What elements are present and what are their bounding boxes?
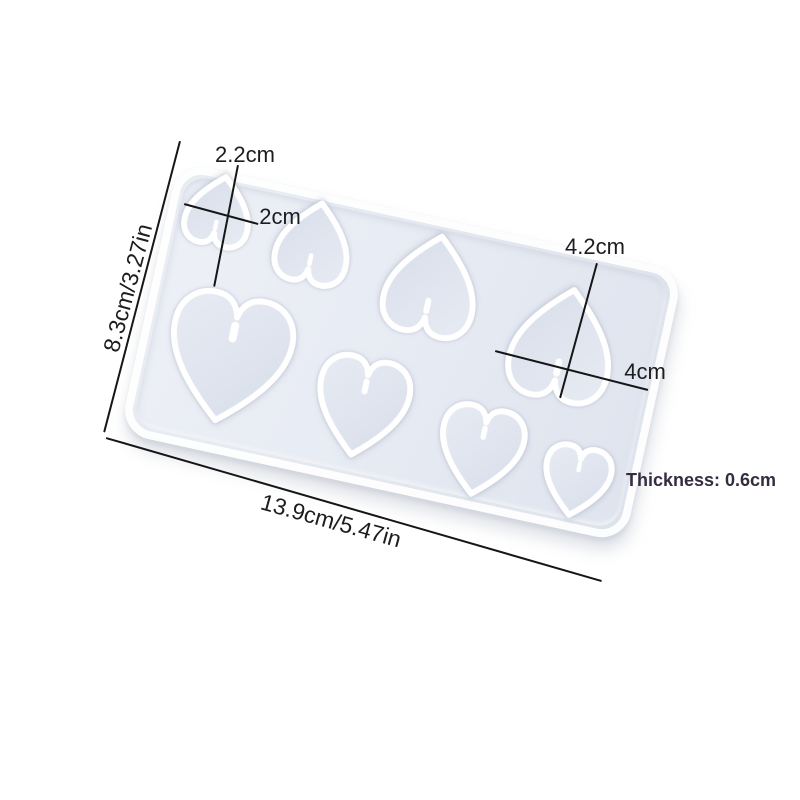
heart-cavity-1 bbox=[172, 162, 265, 258]
large-heart-width-label: 4cm bbox=[624, 361, 666, 383]
product-dimension-image: 8.3cm/3.27in 13.9cm/5.47in 2.2cm 2cm 4.2… bbox=[0, 0, 800, 800]
heart-shape bbox=[141, 271, 315, 448]
large-heart-height-label: 4.2cm bbox=[565, 236, 625, 258]
small-heart-width-label: 2cm bbox=[259, 206, 301, 228]
heart-cavity-5 bbox=[141, 271, 315, 448]
mold-width-label: 13.9cm/5.47in bbox=[258, 491, 403, 552]
heart-shape bbox=[528, 434, 623, 531]
heart-cavity-7 bbox=[420, 391, 539, 514]
heart-cavity-8 bbox=[528, 434, 623, 531]
heart-shape bbox=[420, 391, 539, 514]
heart-shape bbox=[172, 162, 265, 258]
small-heart-height-label: 2.2cm bbox=[215, 144, 275, 166]
thickness-label: Thickness: 0.6cm bbox=[626, 471, 776, 489]
